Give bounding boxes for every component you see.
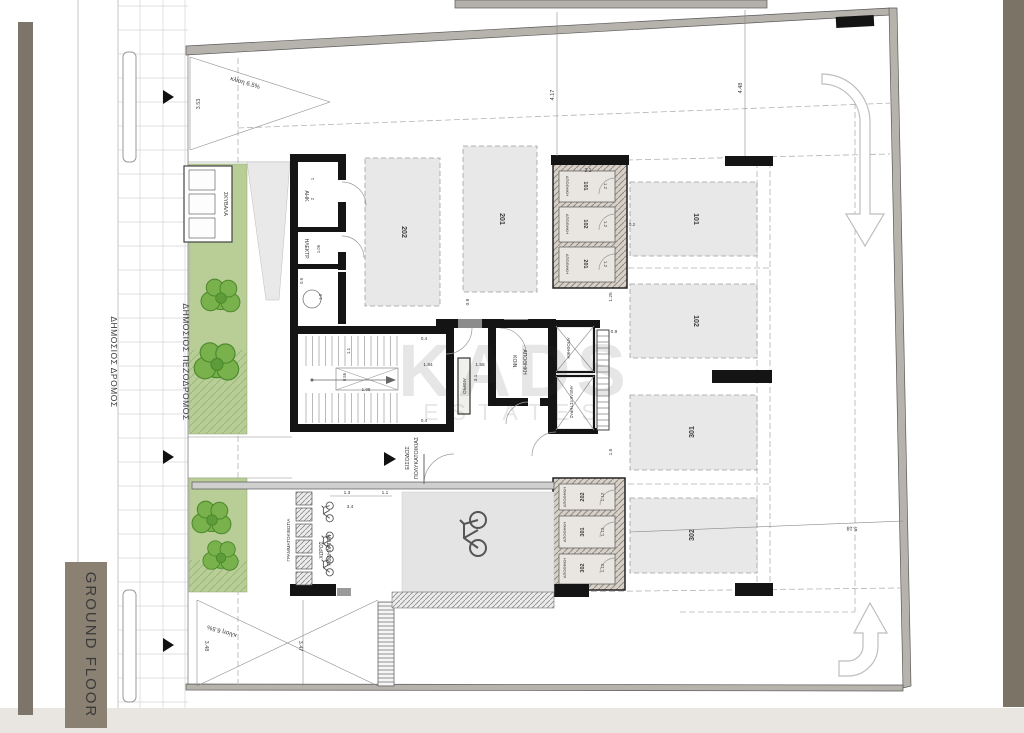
ground-floor-title: GROUND FLOOR <box>65 562 107 728</box>
svg-text:ΑΠΟΘΗΚΗ: ΑΠΟΘΗΚΗ <box>565 176 570 196</box>
svg-text:1.2: 1.2 <box>603 221 608 228</box>
svg-text:1.12: 1.12 <box>600 563 605 572</box>
bicycles-label-2: ΠΟΔΗΛΑΤΩΝ <box>327 534 333 565</box>
street-label-road: ΔΗΜΟΣΙΟΣ ΔΡΟΜΟΣ <box>109 316 119 407</box>
svg-text:1.2: 1.2 <box>603 261 608 268</box>
street-furniture-slab <box>123 590 136 702</box>
svg-text:ΑΠΟΘΗΚΗ: ΑΠΟΘΗΚΗ <box>565 254 570 274</box>
mailboxes-label: ΓΡΑΜΜΑΤΟΚΙΒΩΤΙΑ <box>286 518 291 562</box>
svg-text:4.48: 4.48 <box>738 83 744 94</box>
svg-text:302: 302 <box>580 563 586 572</box>
svg-text:3.4: 3.4 <box>347 504 354 510</box>
mailbox-unit <box>296 524 312 537</box>
watermark: KADS ESTATES <box>398 329 632 425</box>
entrance-label-2: ΠΟΛΥΚΑΤΟΙΚΙΑΣ <box>414 436 420 479</box>
svg-text:102: 102 <box>582 219 588 228</box>
storage-block-top <box>553 162 627 288</box>
svg-text:3.47: 3.47 <box>297 641 303 652</box>
svg-text:1.1: 1.1 <box>382 490 389 496</box>
garbage-enclosure: ΣΚΥΒΑΛΑ <box>184 166 232 242</box>
ahk-label: ΑΗΚ <box>303 190 309 202</box>
mailbox-unit <box>296 556 312 569</box>
svg-text:ΑΠΟΘΗΚΗ: ΑΠΟΘΗΚΗ <box>565 214 570 234</box>
svg-text:0.2: 0.2 <box>629 222 636 227</box>
svg-text:5.18: 5.18 <box>846 525 857 532</box>
page-title: GROUND FLOOR <box>82 572 99 719</box>
svg-text:1.98: 1.98 <box>362 387 371 392</box>
svg-text:ΑΠΟΘΗΚΗ: ΑΠΟΘΗΚΗ <box>562 558 567 578</box>
svg-text:ΑΠΟΘΗΚΗ: ΑΠΟΘΗΚΗ <box>562 522 567 542</box>
svg-text:202: 202 <box>580 492 586 501</box>
svg-text:101: 101 <box>582 181 588 190</box>
mailbox-unit <box>296 572 312 585</box>
svg-text:101: 101 <box>692 213 699 225</box>
svg-text:201: 201 <box>582 259 588 268</box>
svg-text:ΑΠΟΘΗΚΗ: ΑΠΟΘΗΚΗ <box>562 487 567 507</box>
svg-text:1.8: 1.8 <box>318 293 323 299</box>
svg-text:102: 102 <box>692 315 699 327</box>
svg-text:1.06: 1.06 <box>316 244 321 253</box>
svg-text:3.48: 3.48 <box>203 641 209 652</box>
svg-text:1.12: 1.12 <box>600 492 605 501</box>
tree-icon <box>194 343 238 380</box>
svg-text:0.9: 0.9 <box>299 277 304 283</box>
tree-icon <box>192 501 231 534</box>
floor-plan-page: ΔΗΜΟΣΙΟΣ ΔΡΟΜΟΣ ΔΗΜΟΣΙΟΣ ΠΕΖΟΔΡΟΜΟΣ 202 <box>0 0 1024 733</box>
svg-text:4.17: 4.17 <box>550 90 556 101</box>
watermark-sub: ESTATES <box>423 399 608 425</box>
svg-text:302: 302 <box>689 529 696 541</box>
garbage-label: ΣΚΥΒΑΛΑ <box>222 192 228 217</box>
svg-text:1.25: 1.25 <box>608 292 614 302</box>
svg-text:202: 202 <box>400 226 407 238</box>
tree-icon <box>201 279 240 312</box>
svg-text:1.12: 1.12 <box>600 527 605 536</box>
mailbox-unit <box>296 508 312 521</box>
footer-band <box>0 708 1024 733</box>
floor-plan-drawing: ΔΗΜΟΣΙΟΣ ΔΡΟΜΟΣ ΔΗΜΟΣΙΟΣ ΠΕΖΟΔΡΟΜΟΣ 202 <box>0 0 1024 733</box>
tree-icon <box>203 541 238 570</box>
svg-text:0.9: 0.9 <box>465 298 471 305</box>
svg-text:301: 301 <box>580 527 586 536</box>
svg-text:1.1: 1.1 <box>346 347 351 354</box>
svg-text:2.1: 2.1 <box>585 168 592 174</box>
mailbox-unit <box>296 492 312 505</box>
street-furniture-slab <box>123 52 136 162</box>
ramp-hatch-strip <box>378 602 394 686</box>
svg-text:1.3: 1.3 <box>344 490 351 496</box>
svg-text:301: 301 <box>689 426 696 438</box>
right-accent-bar <box>1003 0 1024 707</box>
bicycles-label-1: ΧΩΡΟΣ <box>319 541 325 558</box>
svg-text:201: 201 <box>498 213 505 225</box>
svg-text:1.5: 1.5 <box>608 448 614 455</box>
svg-text:1.2: 1.2 <box>603 183 608 190</box>
svg-text:3.53: 3.53 <box>196 99 202 110</box>
left-accent-bar <box>18 22 33 715</box>
entrance-label-1: ΕΙΣΟΔΟΣ <box>405 446 411 470</box>
mailbox-unit <box>296 540 312 553</box>
svg-text:0.56: 0.56 <box>342 372 347 381</box>
electrical-label: ΗΛΕΚΤΡ. <box>303 239 309 260</box>
